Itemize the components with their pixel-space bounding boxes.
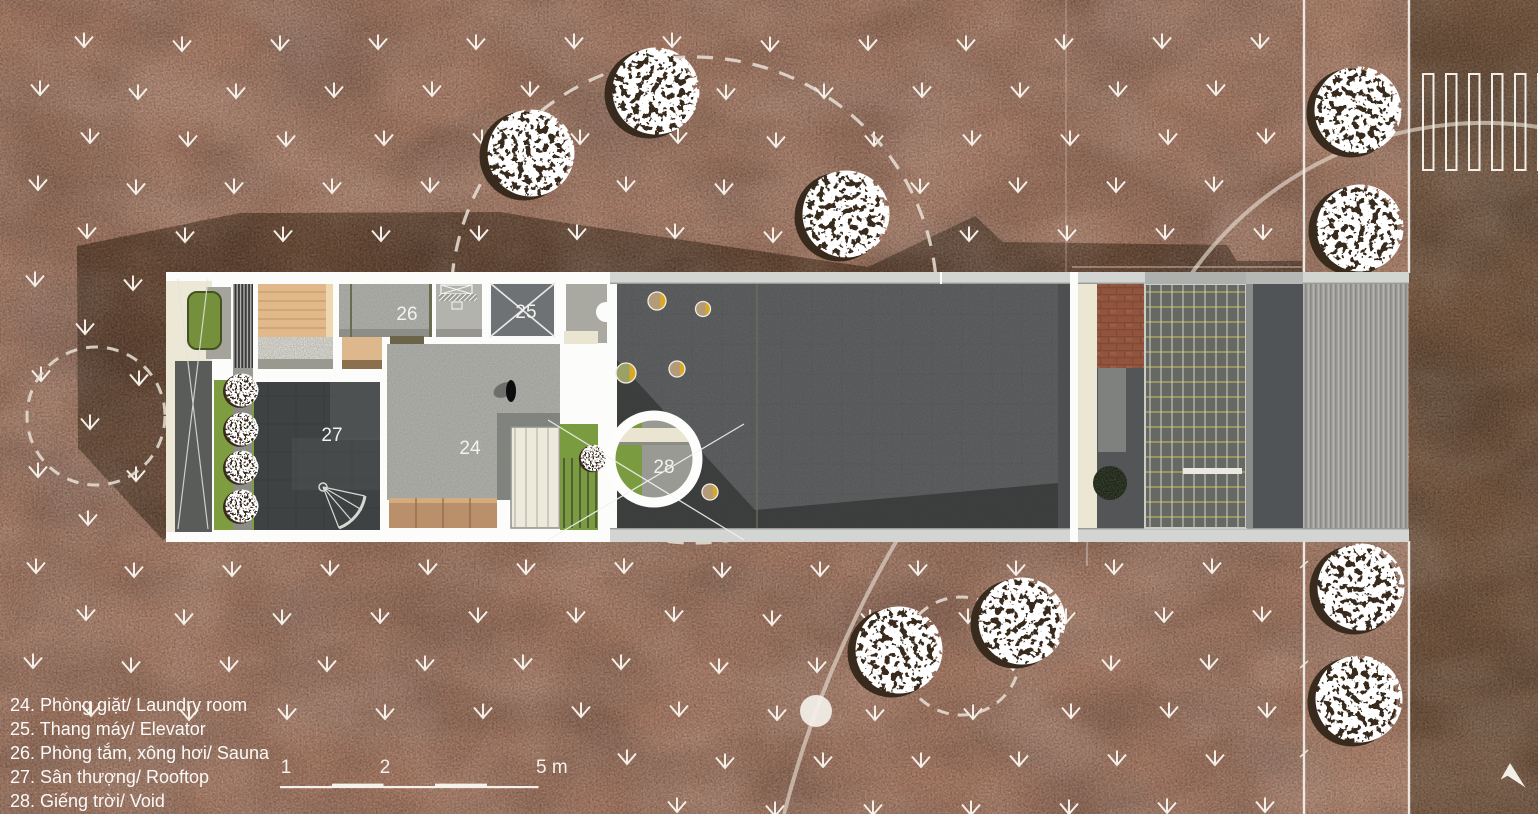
svg-text:25: 25 [515,302,536,323]
svg-text:25. Thang máy/ Elevator: 25. Thang máy/ Elevator [10,719,206,739]
svg-text:5 m: 5 m [536,757,568,778]
svg-text:26: 26 [396,304,417,325]
svg-text:26. Phòng tắm, xông hơi/ Sauna: 26. Phòng tắm, xông hơi/ Sauna [10,742,270,763]
svg-text:24. Phòng giặt/ Laundry room: 24. Phòng giặt/ Laundry room [10,695,247,715]
svg-text:24: 24 [459,438,481,459]
svg-text:27. Sân thượng/ Rooftop: 27. Sân thượng/ Rooftop [10,767,209,787]
svg-text:2: 2 [380,757,391,778]
svg-text:28. Giếng trời/ Void: 28. Giếng trời/ Void [10,791,165,811]
svg-text:1: 1 [281,757,292,778]
svg-text:28: 28 [653,457,674,478]
svg-text:27: 27 [321,425,342,446]
